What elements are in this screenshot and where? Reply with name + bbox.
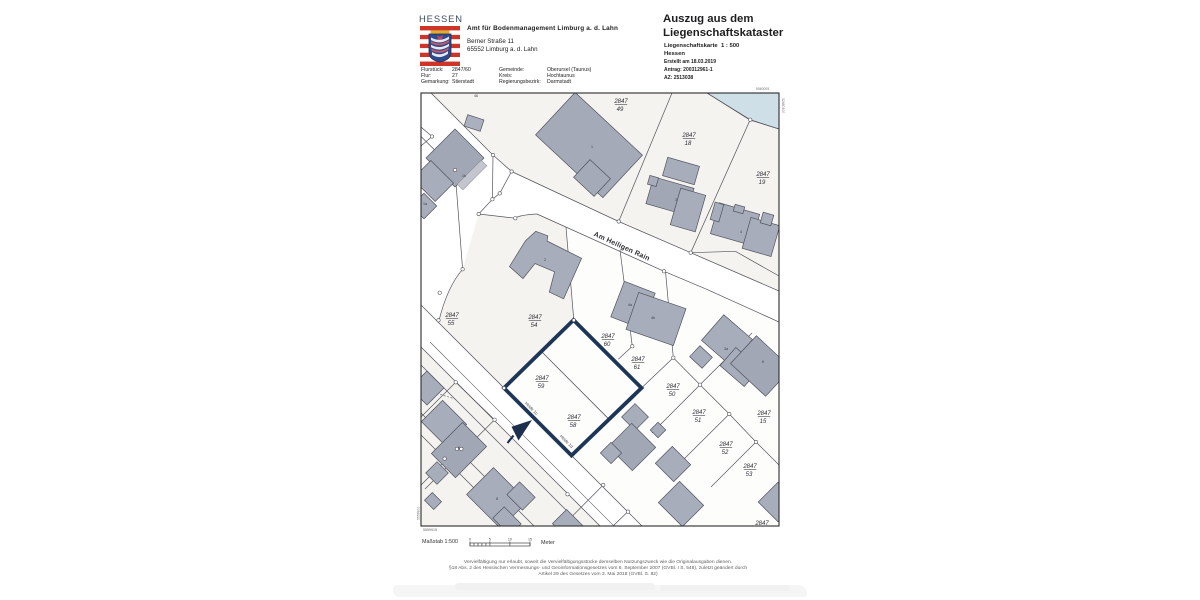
svg-text:2847: 2847 [527,315,542,321]
svg-text:2847: 2847 [444,313,459,319]
svg-text:2847: 2847 [691,410,706,416]
svg-text:55: 55 [448,321,455,327]
svg-text:3a: 3a [724,347,728,351]
svg-text:10: 10 [508,537,512,541]
svg-text:5: 5 [489,537,491,541]
svg-text:2847: 2847 [613,99,628,105]
svg-text:53: 53 [746,472,753,478]
svg-text:15: 15 [528,537,532,541]
svg-text:1a: 1a [423,202,427,206]
svg-text:4a: 4a [628,303,632,307]
svg-text:54: 54 [531,323,538,329]
svg-text:52: 52 [722,450,729,456]
svg-text:2847: 2847 [630,357,645,363]
svg-text:2847: 2847 [755,172,770,178]
svg-text:2847: 2847 [742,464,757,470]
svg-text:5560005: 5560005 [756,87,769,91]
svg-text:2847: 2847 [718,442,733,448]
svg-text:2847: 2847 [756,411,771,417]
svg-text:51: 51 [695,418,702,424]
svg-text:2847: 2847 [681,133,696,139]
svg-text:50: 50 [669,392,676,398]
svg-text:3: 3 [675,198,677,202]
svg-text:0: 0 [469,537,471,541]
svg-text:18: 18 [685,141,692,147]
svg-text:8: 8 [496,497,498,501]
svg-text:2847: 2847 [600,334,615,340]
svg-text:61: 61 [634,365,641,371]
svg-text:6: 6 [762,360,764,364]
svg-text:58: 58 [570,423,577,429]
svg-text:6: 6 [458,446,460,450]
svg-text:4: 4 [740,230,742,234]
svg-text:59: 59 [538,384,545,390]
svg-text:60: 60 [604,342,611,348]
svg-text:2847: 2847 [534,376,549,382]
svg-text:2847: 2847 [665,384,680,390]
svg-text:32480300: 32480300 [781,98,785,113]
svg-text:4b: 4b [651,316,655,320]
svg-text:19: 19 [759,180,766,186]
svg-text:1: 1 [591,145,593,149]
svg-text:1b: 1b [462,174,466,178]
svg-text:2: 2 [544,258,546,262]
svg-text:49: 49 [617,107,624,113]
svg-text:5559900: 5559900 [417,507,421,520]
svg-text:15: 15 [760,419,767,425]
svg-text:46: 46 [474,94,478,98]
svg-text:2847: 2847 [566,415,581,421]
